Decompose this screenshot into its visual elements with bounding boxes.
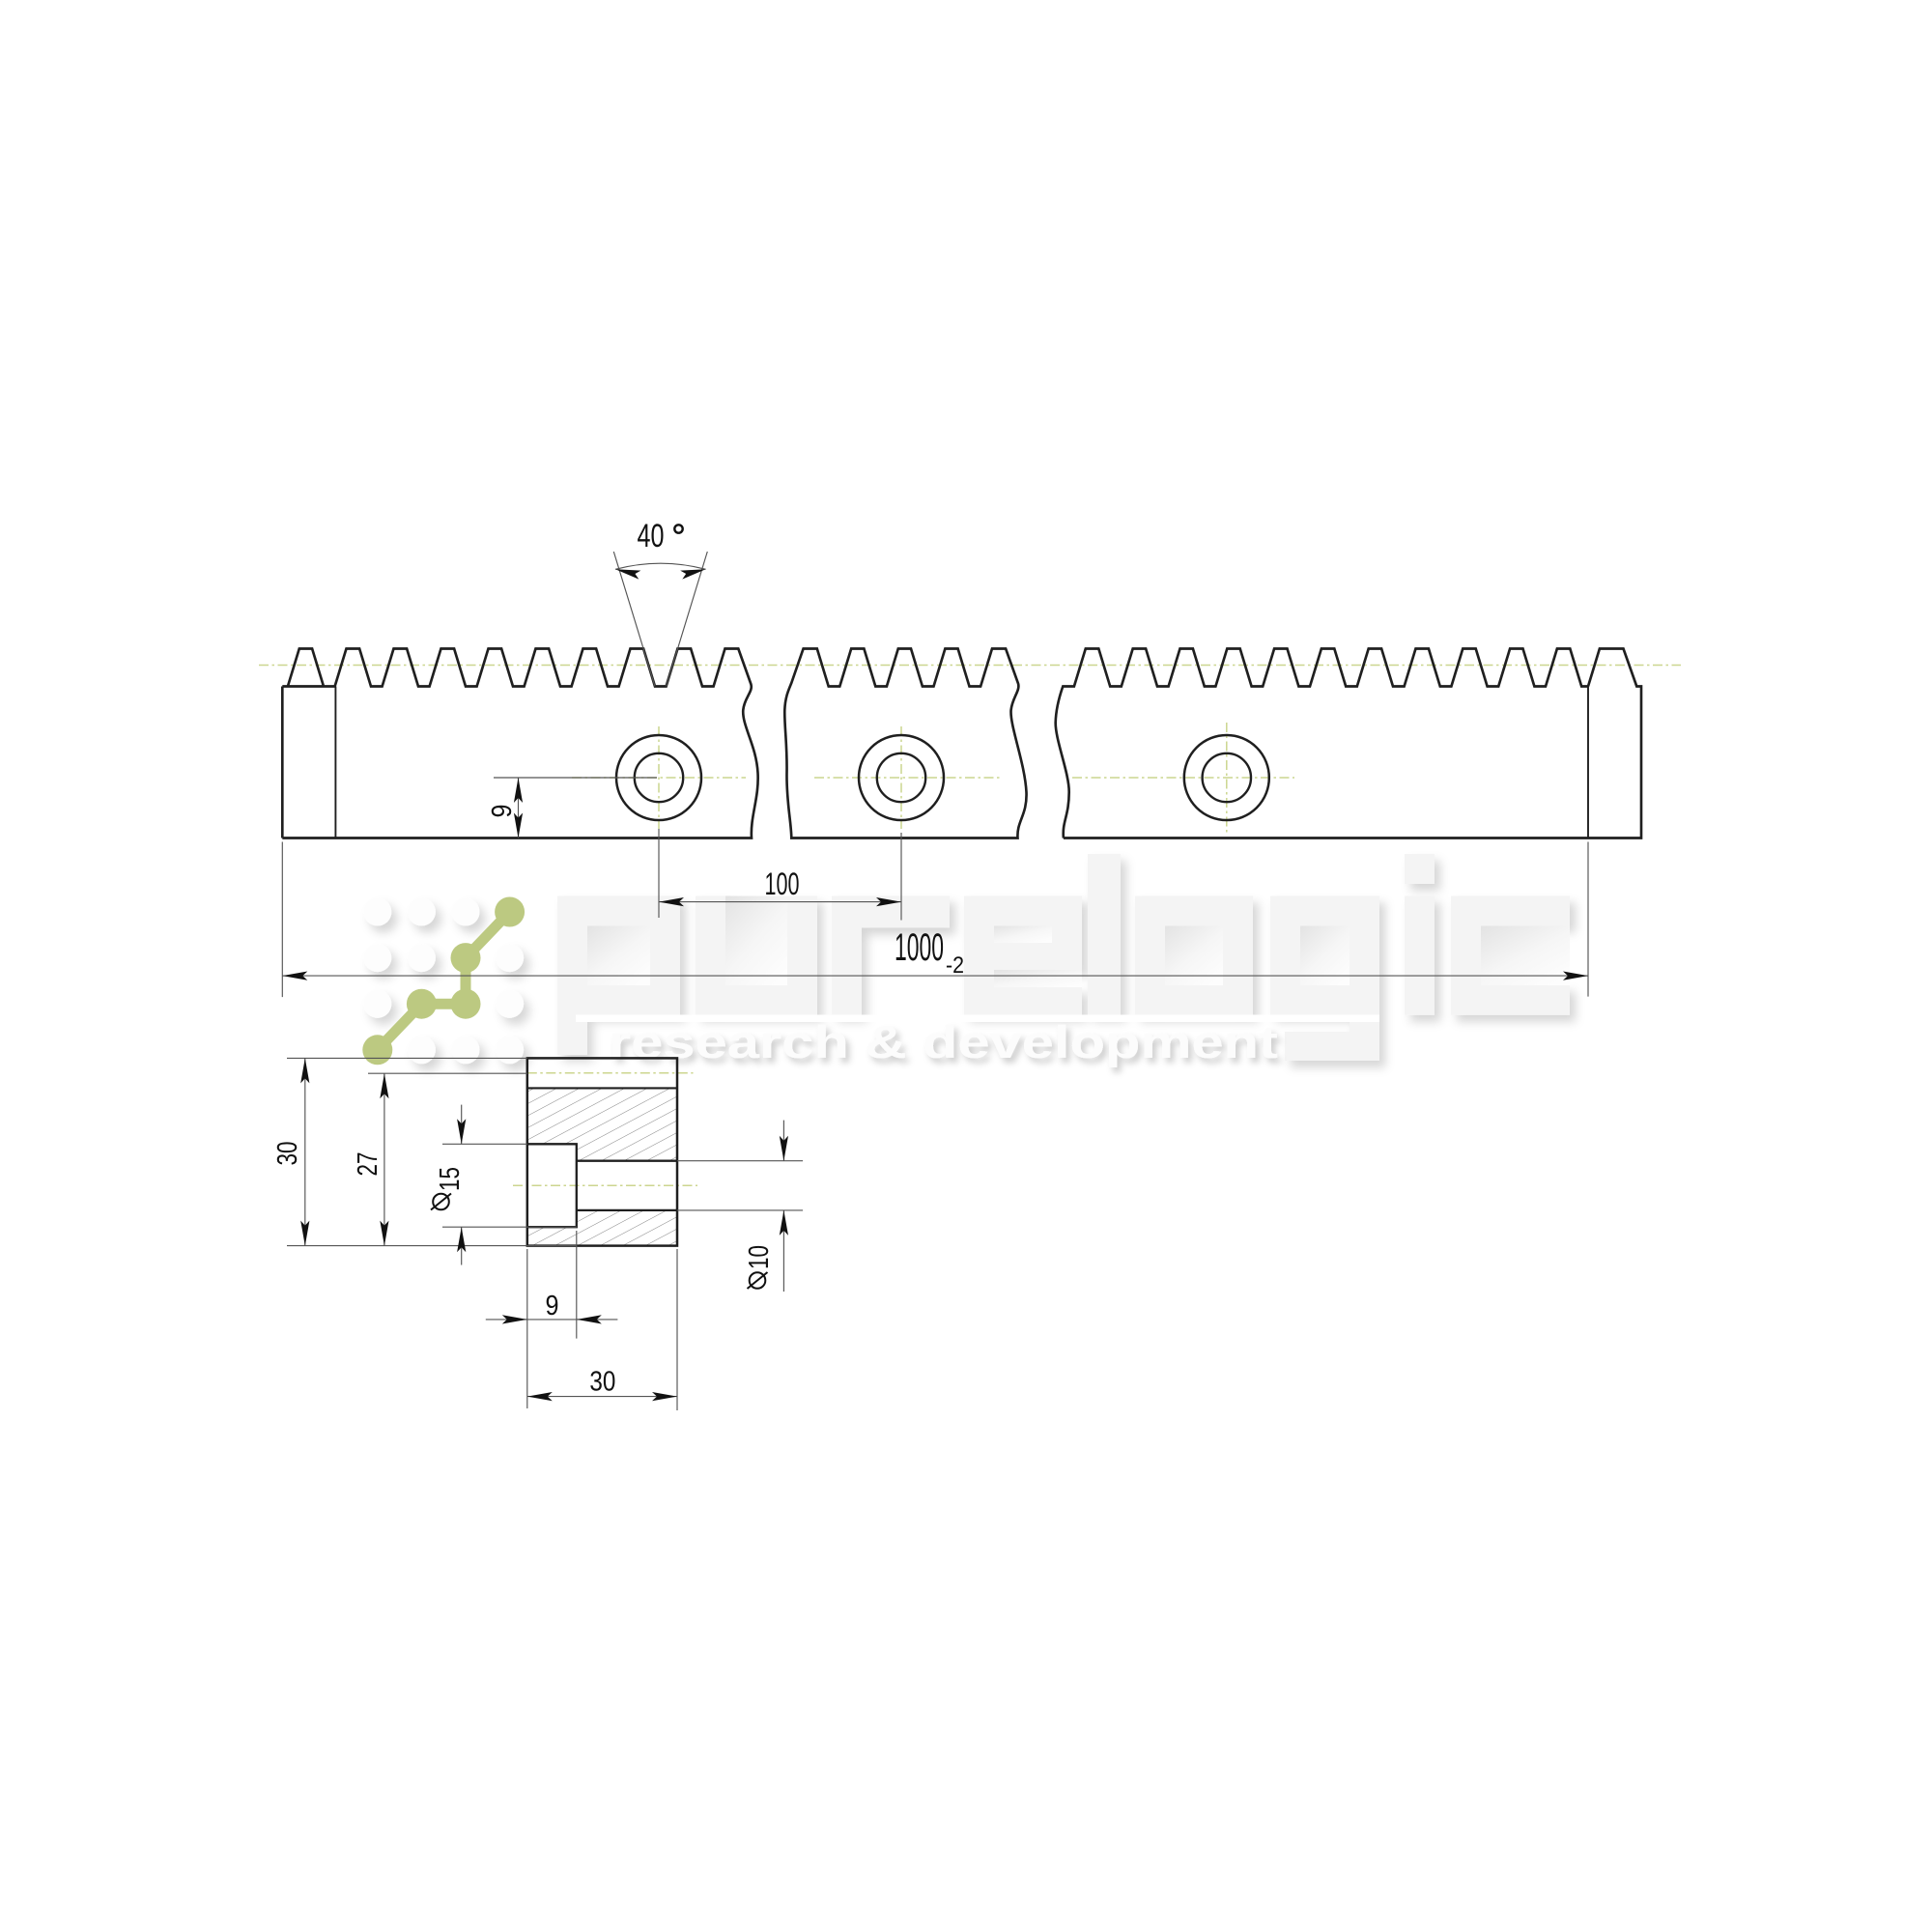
svg-text:40: 40 — [638, 518, 665, 554]
svg-text:30: 30 — [272, 1142, 303, 1166]
svg-text:10: 10 — [744, 1245, 775, 1269]
svg-text:1000: 1000 — [895, 926, 944, 969]
svg-text:research & development: research & development — [609, 1016, 1278, 1067]
svg-text:27: 27 — [353, 1152, 384, 1177]
svg-text:15: 15 — [435, 1167, 466, 1191]
svg-text:30: 30 — [589, 1366, 615, 1397]
svg-text:9: 9 — [546, 1291, 559, 1321]
svg-text:-2: -2 — [946, 952, 964, 979]
svg-text:9: 9 — [487, 805, 518, 818]
svg-text:100: 100 — [765, 867, 800, 901]
